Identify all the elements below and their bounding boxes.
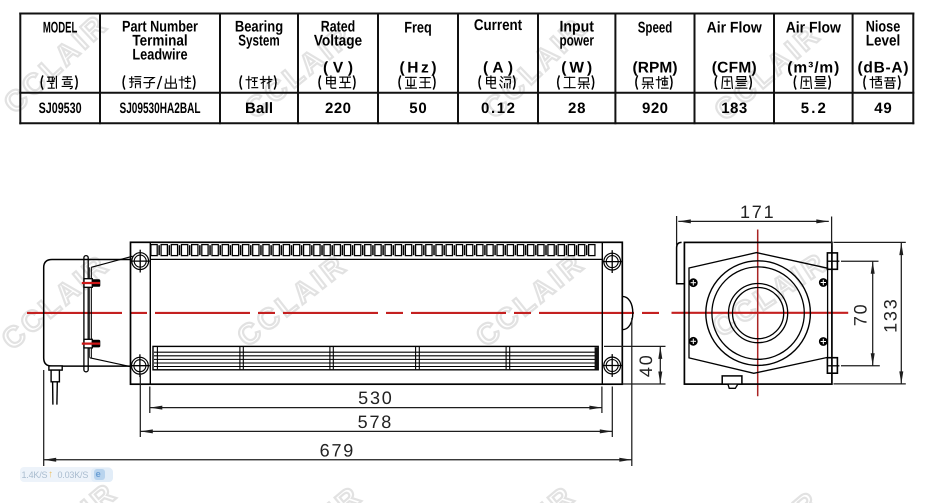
svg-text:CCLAIR: CCLAIR (707, 246, 833, 344)
svg-text:Air Flow: Air Flow (707, 20, 763, 37)
svg-text:MODEL: MODEL (43, 20, 78, 37)
svg-text:Leadwire: Leadwire (132, 47, 188, 64)
svg-text:(dB-A): (dB-A) (858, 60, 909, 77)
svg-text:power: power (559, 33, 594, 50)
svg-text:Voltage: Voltage (314, 33, 363, 50)
svg-text:50: 50 (409, 100, 427, 117)
svg-text:(A): (A) (483, 60, 513, 77)
svg-text:SJ09530HA2BAL: SJ09530HA2BAL (120, 100, 201, 117)
svg-text:CCLAIR: CCLAIR (249, 479, 369, 503)
svg-text:171: 171 (740, 202, 775, 222)
svg-text:SJ09530: SJ09530 (39, 100, 82, 117)
svg-text:70: 70 (851, 302, 871, 326)
svg-text:220: 220 (325, 100, 351, 117)
svg-text:Current: Current (474, 17, 522, 34)
svg-text:183: 183 (721, 100, 747, 117)
svg-text:(m³/m): (m³/m) (787, 60, 839, 77)
svg-text:5.2: 5.2 (801, 100, 826, 117)
svg-text:28: 28 (568, 100, 586, 117)
svg-text:49: 49 (874, 100, 892, 117)
svg-text:Speed: Speed (638, 20, 673, 37)
svg-text:CCLAIR: CCLAIR (462, 479, 582, 503)
svg-text:40: 40 (636, 353, 656, 377)
svg-text:Freq: Freq (404, 20, 432, 37)
svg-text:Level: Level (866, 33, 901, 50)
svg-text:(CFM): (CFM) (712, 60, 757, 77)
svg-text:530: 530 (358, 388, 393, 408)
svg-text:133: 133 (881, 297, 901, 332)
svg-text:578: 578 (358, 412, 393, 432)
svg-text:(RPM): (RPM) (633, 60, 678, 77)
svg-text:(Hz): (Hz) (400, 60, 437, 77)
svg-text:System: System (238, 33, 279, 50)
svg-text:Air Flow: Air Flow (786, 20, 842, 37)
svg-text:Ball: Ball (245, 100, 273, 117)
svg-text:0.12: 0.12 (481, 100, 515, 117)
svg-text:(W): (W) (561, 60, 592, 77)
svg-text:CCLAIR: CCLAIR (232, 248, 354, 353)
svg-text:CCLAIR: CCLAIR (470, 247, 591, 354)
svg-text:(V): (V) (323, 60, 353, 77)
svg-text:CCLAIR: CCLAIR (707, 484, 827, 503)
svg-text:920: 920 (642, 100, 668, 117)
svg-text:679: 679 (320, 440, 355, 460)
